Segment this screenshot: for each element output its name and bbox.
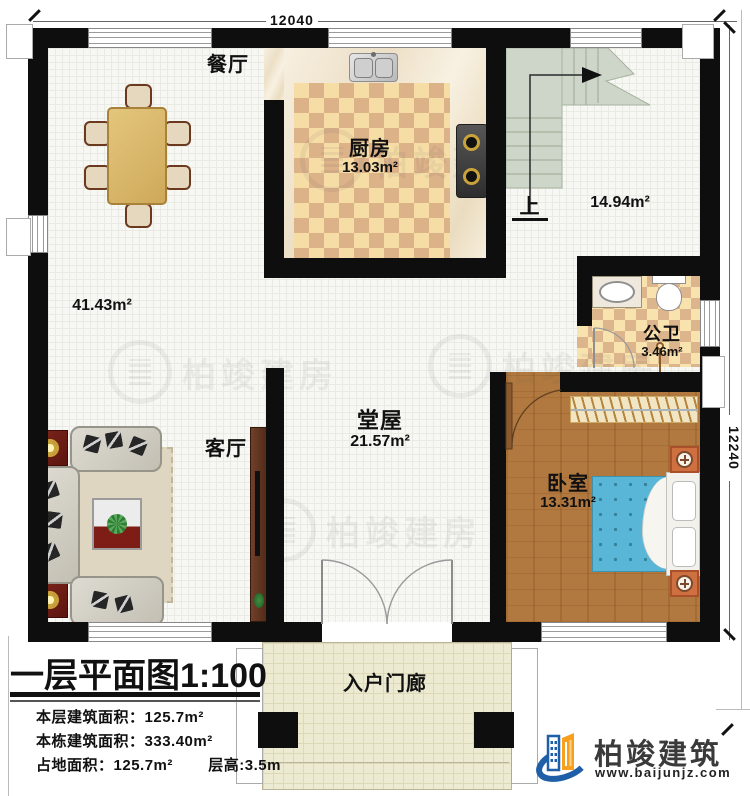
- title-underline: [10, 692, 260, 697]
- toilet: [650, 272, 686, 310]
- title-scale: 1:100: [180, 657, 267, 695]
- bed-headboard: [666, 472, 700, 576]
- dimension-line-top: [33, 21, 737, 22]
- burner-icon: [463, 168, 480, 185]
- window: [570, 28, 642, 48]
- tv-icon: [255, 471, 260, 556]
- sink-basin: [375, 58, 393, 78]
- burner-icon: [463, 134, 480, 151]
- faucet-icon: [371, 52, 376, 57]
- dining-chair: [164, 121, 191, 146]
- window: [700, 300, 720, 347]
- dimension-line-right: [729, 25, 730, 640]
- stairs-up-label: 上: [512, 196, 548, 221]
- info-footprint-and-height: 占地面积：125.7m² 层高:3.5m: [36, 754, 281, 775]
- nightstand-lamp-icon: [676, 451, 693, 468]
- window: [88, 622, 212, 642]
- throw-pillow: [91, 591, 110, 610]
- wall-living-stub: [266, 368, 284, 622]
- dining-chair: [125, 84, 152, 109]
- porch-column: [258, 712, 298, 748]
- wall-left: [28, 28, 48, 642]
- nightstand: [670, 446, 699, 473]
- bed-pillow: [672, 527, 696, 567]
- extension-box: [702, 356, 725, 408]
- info-floor-area: 本层建筑面积：125.7m²: [36, 706, 204, 727]
- stairs-area-label: 14.94m²: [580, 194, 660, 212]
- frame-line: [8, 636, 9, 796]
- title-underline-thin: [10, 700, 260, 702]
- dining-chair: [125, 203, 152, 228]
- frame-line: [741, 10, 742, 710]
- floor-plan-canvas: 柏竣建房 柏竣建房 柏竣建房 柏竣建房: [0, 0, 750, 796]
- room-label-kitchen: 厨房 13.03m²: [330, 138, 410, 177]
- dimension-tick: [713, 9, 726, 22]
- entrance-double-door: [315, 552, 461, 630]
- stove: [456, 124, 488, 198]
- window: [28, 215, 48, 253]
- bedroom-door: [498, 376, 570, 454]
- kitchen-doorway-floor: [264, 48, 284, 100]
- wall-kitchen-left: [264, 100, 284, 278]
- dining-table: [107, 107, 167, 205]
- porch-step-edge: [263, 762, 509, 763]
- wall-kitchen-right: [486, 48, 506, 278]
- wall-bedroom-top: [560, 372, 700, 392]
- throw-pillow: [105, 431, 124, 450]
- sink-basin: [354, 58, 373, 78]
- extension-box: [6, 24, 33, 59]
- dimension-value-right: 12240: [726, 415, 742, 481]
- bed-pillow: [672, 481, 696, 521]
- frame-line: [716, 709, 750, 710]
- bathroom-sink: [599, 281, 635, 303]
- dimension-value-top: 12040: [266, 12, 318, 28]
- dimension-tick: [28, 9, 41, 22]
- room-label-porch: 入户门廊: [320, 673, 450, 695]
- wardrobe: [570, 396, 698, 423]
- window: [328, 28, 452, 48]
- open-area-label: 41.43m²: [62, 297, 142, 315]
- extension-box: [682, 24, 714, 59]
- title-text: 一层平面图: [10, 657, 180, 695]
- room-label-living: 客厅: [196, 438, 256, 460]
- window: [88, 28, 212, 48]
- room-label-dining: 餐厅: [192, 54, 264, 76]
- plant-icon: [107, 514, 127, 534]
- window: [541, 622, 667, 642]
- plant-icon: [254, 593, 264, 608]
- coffee-table: [92, 498, 142, 550]
- porch-column: [474, 712, 514, 748]
- drawing-title: 一层平面图1:100: [10, 648, 267, 697]
- company-logo-icon: [536, 728, 592, 784]
- porch-side-step: [511, 648, 538, 784]
- info-building-area: 本栋建筑面积：333.40m²: [36, 730, 213, 751]
- wall-bath-top: [577, 256, 700, 276]
- room-label-bedroom: 卧室 13.31m²: [528, 473, 608, 512]
- frame-corner-tick: [721, 723, 734, 736]
- wall-bath-left: [577, 276, 592, 326]
- dining-chair: [164, 165, 191, 190]
- kitchen-sink: [349, 53, 398, 82]
- wall-kitchen-bottom: [264, 258, 504, 278]
- room-label-hall: 堂屋 21.57m²: [340, 409, 420, 451]
- extension-box: [6, 218, 31, 256]
- nightstand-lamp-icon: [676, 575, 693, 592]
- room-label-bath: 公卫 3.46m²: [626, 325, 698, 359]
- company-website: www.baijunjz.com: [595, 764, 731, 782]
- nightstand: [670, 570, 699, 597]
- bathroom-vanity: [592, 276, 642, 308]
- toilet-bowl: [656, 283, 682, 311]
- wardrobe-rod: [571, 409, 697, 411]
